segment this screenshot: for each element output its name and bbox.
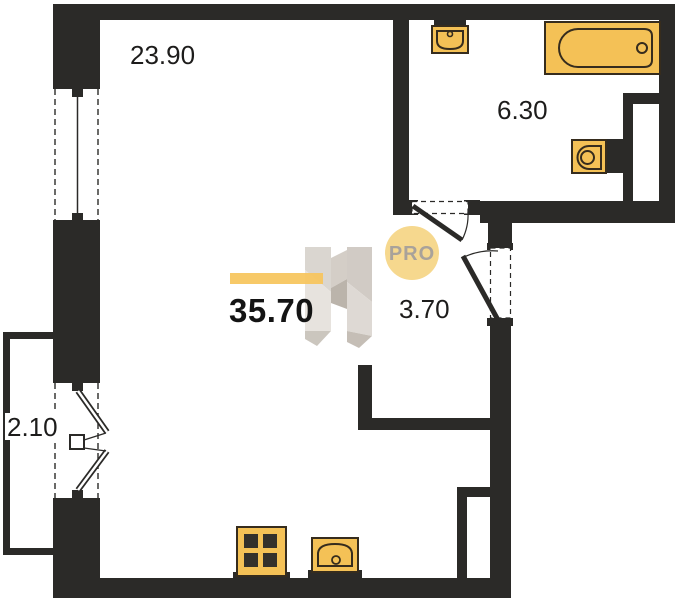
shaft-bottom-top — [457, 487, 490, 497]
wall-entry-stub — [488, 223, 512, 245]
entry-hinge-bottom — [487, 318, 513, 326]
balcony-area-label: 2.10 — [7, 412, 58, 442]
wall-bathroom-left — [393, 19, 409, 215]
wall-interior-right — [490, 325, 511, 598]
window-sill — [53, 498, 100, 503]
window-sill — [53, 378, 100, 383]
bathroom-sink-icon — [432, 19, 468, 53]
toilet-icon — [572, 139, 623, 173]
floor-plan-canvas: PRO — [0, 0, 677, 600]
shaft-right-top — [623, 93, 659, 104]
kitchen-sink-icon — [308, 538, 362, 580]
bathroom-area-label: 6.30 — [497, 95, 548, 125]
floor-plan-drawing: PRO — [0, 0, 677, 600]
total-area-label: 35.70 — [229, 292, 314, 329]
shaft-right-left — [623, 104, 633, 201]
pro-badge-label: PRO — [389, 243, 435, 265]
window-sill — [53, 83, 100, 89]
wall-kitchen-arm — [358, 418, 492, 430]
balcony-walls — [3, 332, 53, 555]
accent-underline — [230, 273, 323, 284]
living-room-area-label: 23.90 — [130, 40, 195, 70]
stove-icon — [233, 527, 290, 582]
wall-left-middle — [53, 226, 100, 378]
balcony-door-icon — [55, 383, 107, 498]
pro-badge: PRO — [385, 226, 439, 280]
shaft-bottom-left — [457, 497, 467, 578]
wall-bathroom-bottom-band — [480, 201, 675, 223]
wall-left-upper — [53, 4, 100, 83]
wall-top — [53, 4, 675, 20]
hallway-area-label: 3.70 — [399, 294, 450, 324]
wall-right — [659, 4, 675, 223]
bathtub-icon — [545, 22, 660, 74]
entrance-door-icon — [463, 248, 511, 320]
watermark-logo-icon — [305, 247, 372, 348]
window-icon — [55, 89, 98, 221]
